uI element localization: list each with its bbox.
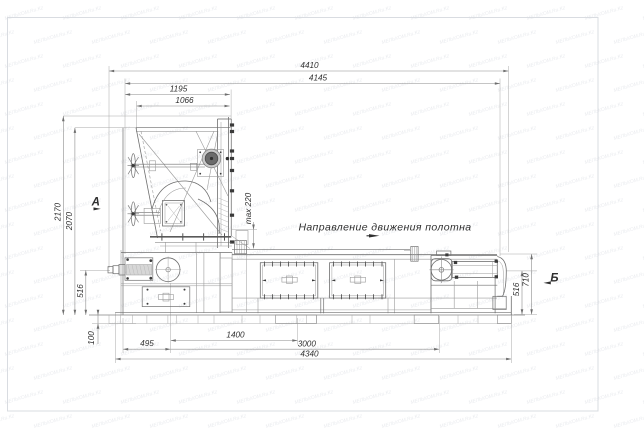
svg-text:МЕЛЬКОМ.Ru.Kz: МЕЛЬКОМ.Ru.Kz xyxy=(497,365,538,382)
svg-text:МЕЛЬКОМ.Ru.Kz: МЕЛЬКОМ.Ru.Kz xyxy=(178,389,219,406)
svg-text:МЕЛЬКОМ.Ru.Kz: МЕЛЬКОМ.Ru.Kz xyxy=(352,101,393,118)
svg-text:МЕЛЬКОМ.Ru.Kz: МЕЛЬКОМ.Ru.Kz xyxy=(526,341,567,358)
svg-text:МЕЛЬКОМ.Ru.Kz: МЕЛЬКОМ.Ru.Kz xyxy=(323,365,364,382)
svg-text:МЕЛЬКОМ.Ru.Kz: МЕЛЬКОМ.Ru.Kz xyxy=(497,77,538,94)
svg-text:МЕЛЬКОМ.Ru.Kz: МЕЛЬКОМ.Ru.Kz xyxy=(207,77,248,94)
svg-text:МЕЛЬКОМ.Ru.Kz: МЕЛЬКОМ.Ru.Kz xyxy=(120,197,161,214)
svg-text:МЕЛЬКОМ.Ru.Kz: МЕЛЬКОМ.Ru.Kz xyxy=(323,317,364,334)
svg-text:МЕЛЬКОМ.Ru.Kz: МЕЛЬКОМ.Ru.Kz xyxy=(149,365,190,382)
svg-text:МЕЛЬКОМ.Ru.Kz: МЕЛЬКОМ.Ru.Kz xyxy=(439,29,480,46)
svg-text:МЕЛЬКОМ.Ru.Kz: МЕЛЬКОМ.Ru.Kz xyxy=(33,413,74,430)
svg-text:МЕЛЬКОМ.Ru.Kz: МЕЛЬКОМ.Ru.Kz xyxy=(584,389,625,406)
svg-text:МЕЛЬКОМ.Ru.Kz: МЕЛЬКОМ.Ru.Kz xyxy=(526,245,567,262)
svg-text:МЕЛЬКОМ.Ru.Kz: МЕЛЬКОМ.Ru.Kz xyxy=(352,389,393,406)
svg-text:МЕЛЬКОМ.Ru.Kz: МЕЛЬКОМ.Ru.Kz xyxy=(352,197,393,214)
svg-text:МЕЛЬКОМ.Ru.Kz: МЕЛЬКОМ.Ru.Kz xyxy=(120,101,161,118)
svg-text:МЕЛЬКОМ.Ru.Kz: МЕЛЬКОМ.Ru.Kz xyxy=(613,317,644,334)
svg-text:710: 710 xyxy=(522,273,531,287)
svg-text:МЕЛЬКОМ.Ru.Kz: МЕЛЬКОМ.Ru.Kz xyxy=(352,53,393,70)
svg-text:1195: 1195 xyxy=(170,85,188,94)
svg-text:МЕЛЬКОМ.Ru.Kz: МЕЛЬКОМ.Ru.Kz xyxy=(91,221,132,238)
svg-text:2070: 2070 xyxy=(65,211,74,231)
svg-text:МЕЛЬКОМ.Ru.Kz: МЕЛЬКОМ.Ru.Kz xyxy=(497,317,538,334)
svg-text:МЕЛЬКОМ.Ru.Kz: МЕЛЬКОМ.Ru.Kz xyxy=(0,413,16,430)
svg-text:МЕЛЬКОМ.Ru.Kz: МЕЛЬКОМ.Ru.Kz xyxy=(33,173,74,190)
svg-text:МЕЛЬКОМ.Ru.Kz: МЕЛЬКОМ.Ru.Kz xyxy=(4,197,45,214)
svg-text:МЕЛЬКОМ.Ru.Kz: МЕЛЬКОМ.Ru.Kz xyxy=(120,5,161,22)
svg-text:МЕЛЬКОМ.Ru.Kz: МЕЛЬКОМ.Ru.Kz xyxy=(352,5,393,22)
svg-text:4340: 4340 xyxy=(300,350,319,359)
svg-text:МЕЛЬКОМ.Ru.Kz: МЕЛЬКОМ.Ru.Kz xyxy=(265,173,306,190)
svg-text:МЕЛЬКОМ.Ru.Kz: МЕЛЬКОМ.Ru.Kz xyxy=(149,173,190,190)
svg-text:МЕЛЬКОМ.Ru.Kz: МЕЛЬКОМ.Ru.Kz xyxy=(33,365,74,382)
svg-text:МЕЛЬКОМ.Ru.Kz: МЕЛЬКОМ.Ru.Kz xyxy=(468,389,509,406)
svg-text:МЕЛЬКОМ.Ru.Kz: МЕЛЬКОМ.Ru.Kz xyxy=(584,197,625,214)
svg-text:МЕЛЬКОМ.Ru.Kz: МЕЛЬКОМ.Ru.Kz xyxy=(555,317,596,334)
svg-text:МЕЛЬКОМ.Ru.Kz: МЕЛЬКОМ.Ru.Kz xyxy=(33,125,74,142)
svg-text:МЕЛЬКОМ.Ru.Kz: МЕЛЬКОМ.Ru.Kz xyxy=(62,341,103,358)
svg-text:МЕЛЬКОМ.Ru.Kz: МЕЛЬКОМ.Ru.Kz xyxy=(178,5,219,22)
svg-text:МЕЛЬКОМ.Ru.Kz: МЕЛЬКОМ.Ru.Kz xyxy=(410,293,451,310)
svg-text:МЕЛЬКОМ.Ru.Kz: МЕЛЬКОМ.Ru.Kz xyxy=(62,5,103,22)
svg-text:МЕЛЬКОМ.Ru.Kz: МЕЛЬКОМ.Ru.Kz xyxy=(120,389,161,406)
svg-text:МЕЛЬКОМ.Ru.Kz: МЕЛЬКОМ.Ru.Kz xyxy=(468,5,509,22)
svg-text:МЕЛЬКОМ.Ru.Kz: МЕЛЬКОМ.Ru.Kz xyxy=(352,149,393,166)
svg-text:МЕЛЬКОМ.Ru.Kz: МЕЛЬКОМ.Ru.Kz xyxy=(323,413,364,430)
svg-text:МЕЛЬКОМ.Ru.Kz: МЕЛЬКОМ.Ru.Kz xyxy=(497,173,538,190)
svg-text:МЕЛЬКОМ.Ru.Kz: МЕЛЬКОМ.Ru.Kz xyxy=(555,269,596,286)
svg-text:МЕЛЬКОМ.Ru.Kz: МЕЛЬКОМ.Ru.Kz xyxy=(265,77,306,94)
svg-text:МЕЛЬКОМ.Ru.Kz: МЕЛЬКОМ.Ru.Kz xyxy=(236,197,277,214)
svg-text:МЕЛЬКОМ.Ru.Kz: МЕЛЬКОМ.Ru.Kz xyxy=(120,245,161,262)
svg-text:МЕЛЬКОМ.Ru.Kz: МЕЛЬКОМ.Ru.Kz xyxy=(91,413,132,430)
svg-text:МЕЛЬКОМ.Ru.Kz: МЕЛЬКОМ.Ru.Kz xyxy=(555,173,596,190)
svg-text:МЕЛЬКОМ.Ru.Kz: МЕЛЬКОМ.Ru.Kz xyxy=(4,389,45,406)
svg-text:МЕЛЬКОМ.Ru.Kz: МЕЛЬКОМ.Ru.Kz xyxy=(4,53,45,70)
svg-text:МЕЛЬКОМ.Ru.Kz: МЕЛЬКОМ.Ru.Kz xyxy=(381,269,422,286)
svg-text:МЕЛЬКОМ.Ru.Kz: МЕЛЬКОМ.Ru.Kz xyxy=(207,365,248,382)
svg-text:МЕЛЬКОМ.Ru.Kz: МЕЛЬКОМ.Ru.Kz xyxy=(62,389,103,406)
svg-text:МЕЛЬКОМ.Ru.Kz: МЕЛЬКОМ.Ru.Kz xyxy=(381,29,422,46)
svg-text:МЕЛЬКОМ.Ru.Kz: МЕЛЬКОМ.Ru.Kz xyxy=(526,389,567,406)
svg-text:МЕЛЬКОМ.Ru.Kz: МЕЛЬКОМ.Ru.Kz xyxy=(62,101,103,118)
svg-text:МЕЛЬКОМ.Ru.Kz: МЕЛЬКОМ.Ru.Kz xyxy=(381,317,422,334)
svg-text:МЕЛЬКОМ.Ru.Kz: МЕЛЬКОМ.Ru.Kz xyxy=(613,173,644,190)
svg-text:МЕЛЬКОМ.Ru.Kz: МЕЛЬКОМ.Ru.Kz xyxy=(468,53,509,70)
svg-text:МЕЛЬКОМ.Ru.Kz: МЕЛЬКОМ.Ru.Kz xyxy=(294,5,335,22)
svg-text:МЕЛЬКОМ.Ru.Kz: МЕЛЬКОМ.Ru.Kz xyxy=(236,293,277,310)
svg-text:МЕЛЬКОМ.Ru.Kz: МЕЛЬКОМ.Ru.Kz xyxy=(91,173,132,190)
svg-text:МЕЛЬКОМ.Ru.Kz: МЕЛЬКОМ.Ru.Kz xyxy=(526,101,567,118)
svg-text:МЕЛЬКОМ.Ru.Kz: МЕЛЬКОМ.Ru.Kz xyxy=(294,101,335,118)
svg-text:МЕЛЬКОМ.Ru.Kz: МЕЛЬКОМ.Ru.Kz xyxy=(526,5,567,22)
svg-text:МЕЛЬКОМ.Ru.Kz: МЕЛЬКОМ.Ru.Kz xyxy=(613,77,644,94)
svg-text:МЕЛЬКОМ.Ru.Kz: МЕЛЬКОМ.Ru.Kz xyxy=(584,101,625,118)
svg-text:МЕЛЬКОМ.Ru.Kz: МЕЛЬКОМ.Ru.Kz xyxy=(265,413,306,430)
svg-text:МЕЛЬКОМ.Ru.Kz: МЕЛЬКОМ.Ru.Kz xyxy=(265,317,306,334)
svg-text:МЕЛЬКОМ.Ru.Kz: МЕЛЬКОМ.Ru.Kz xyxy=(33,29,74,46)
svg-text:МЕЛЬКОМ.Ru.Kz: МЕЛЬКОМ.Ru.Kz xyxy=(613,413,644,430)
svg-text:МЕЛЬКОМ.Ru.Kz: МЕЛЬКОМ.Ru.Kz xyxy=(381,365,422,382)
svg-text:МЕЛЬКОМ.Ru.Kz: МЕЛЬКОМ.Ru.Kz xyxy=(33,317,74,334)
svg-text:МЕЛЬКОМ.Ru.Kz: МЕЛЬКОМ.Ru.Kz xyxy=(439,173,480,190)
svg-text:МЕЛЬКОМ.Ru.Kz: МЕЛЬКОМ.Ru.Kz xyxy=(526,197,567,214)
svg-text:МЕЛЬКОМ.Ru.Kz: МЕЛЬКОМ.Ru.Kz xyxy=(555,77,596,94)
svg-text:Б: Б xyxy=(550,272,558,284)
svg-text:МЕЛЬКОМ.Ru.Kz: МЕЛЬКОМ.Ru.Kz xyxy=(613,365,644,382)
svg-text:МЕЛЬКОМ.Ru.Kz: МЕЛЬКОМ.Ru.Kz xyxy=(323,125,364,142)
svg-text:МЕЛЬКОМ.Ru.Kz: МЕЛЬКОМ.Ru.Kz xyxy=(265,125,306,142)
svg-text:МЕЛЬКОМ.Ru.Kz: МЕЛЬКОМ.Ru.Kz xyxy=(236,101,277,118)
svg-text:МЕЛЬКОМ.Ru.Kz: МЕЛЬКОМ.Ru.Kz xyxy=(62,149,103,166)
svg-text:МЕЛЬКОМ.Ru.Kz: МЕЛЬКОМ.Ru.Kz xyxy=(236,53,277,70)
svg-text:МЕЛЬКОМ.Ru.Kz: МЕЛЬКОМ.Ru.Kz xyxy=(584,341,625,358)
svg-text:МЕЛЬКОМ.Ru.Kz: МЕЛЬКОМ.Ru.Kz xyxy=(207,221,248,238)
svg-text:МЕЛЬКОМ.Ru.Kz: МЕЛЬКОМ.Ru.Kz xyxy=(4,245,45,262)
svg-text:МЕЛЬКОМ.Ru.Kz: МЕЛЬКОМ.Ru.Kz xyxy=(236,5,277,22)
svg-text:МЕЛЬКОМ.Ru.Kz: МЕЛЬКОМ.Ru.Kz xyxy=(207,29,248,46)
svg-text:МЕЛЬКОМ.Ru.Kz: МЕЛЬКОМ.Ru.Kz xyxy=(207,413,248,430)
svg-text:МЕЛЬКОМ.Ru.Kz: МЕЛЬКОМ.Ru.Kz xyxy=(236,149,277,166)
svg-text:516: 516 xyxy=(76,284,85,298)
svg-text:МЕЛЬКОМ.Ru.Kz: МЕЛЬКОМ.Ru.Kz xyxy=(613,125,644,142)
svg-text:МЕЛЬКОМ.Ru.Kz: МЕЛЬКОМ.Ru.Kz xyxy=(555,221,596,238)
svg-text:МЕЛЬКОМ.Ru.Kz: МЕЛЬКОМ.Ru.Kz xyxy=(613,29,644,46)
svg-text:МЕЛЬКОМ.Ru.Kz: МЕЛЬКОМ.Ru.Kz xyxy=(381,173,422,190)
svg-text:МЕЛЬКОМ.Ru.Kz: МЕЛЬКОМ.Ru.Kz xyxy=(555,29,596,46)
svg-text:МЕЛЬКОМ.Ru.Kz: МЕЛЬКОМ.Ru.Kz xyxy=(4,341,45,358)
svg-text:МЕЛЬКОМ.Ru.Kz: МЕЛЬКОМ.Ru.Kz xyxy=(439,413,480,430)
svg-text:МЕЛЬКОМ.Ru.Kz: МЕЛЬКОМ.Ru.Kz xyxy=(468,101,509,118)
svg-text:МЕЛЬКОМ.Ru.Kz: МЕЛЬКОМ.Ru.Kz xyxy=(410,197,451,214)
svg-text:МЕЛЬКОМ.Ru.Kz: МЕЛЬКОМ.Ru.Kz xyxy=(526,293,567,310)
svg-text:МЕЛЬКОМ.Ru.Kz: МЕЛЬКОМ.Ru.Kz xyxy=(410,5,451,22)
svg-text:МЕЛЬКОМ.Ru.Kz: МЕЛЬКОМ.Ru.Kz xyxy=(4,149,45,166)
svg-text:МЕЛЬКОМ.Ru.Kz: МЕЛЬКОМ.Ru.Kz xyxy=(439,125,480,142)
svg-text:МЕЛЬКОМ.Ru.Kz: МЕЛЬКОМ.Ru.Kz xyxy=(468,197,509,214)
svg-text:МЕЛЬКОМ.Ru.Kz: МЕЛЬКОМ.Ru.Kz xyxy=(120,293,161,310)
svg-text:МЕЛЬКОМ.Ru.Kz: МЕЛЬКОМ.Ru.Kz xyxy=(91,29,132,46)
svg-text:МЕЛЬКОМ.Ru.Kz: МЕЛЬКОМ.Ru.Kz xyxy=(555,125,596,142)
svg-text:1400: 1400 xyxy=(226,331,245,340)
svg-text:А: А xyxy=(91,196,100,208)
svg-text:МЕЛЬКОМ.Ru.Kz: МЕЛЬКОМ.Ru.Kz xyxy=(178,293,219,310)
svg-text:2170: 2170 xyxy=(53,202,62,222)
svg-text:МЕЛЬКОМ.Ru.Kz: МЕЛЬКОМ.Ru.Kz xyxy=(497,125,538,142)
svg-text:516: 516 xyxy=(512,282,521,296)
svg-text:МЕЛЬКОМ.Ru.Kz: МЕЛЬКОМ.Ru.Kz xyxy=(178,245,219,262)
svg-text:МЕЛЬКОМ.Ru.Kz: МЕЛЬКОМ.Ru.Kz xyxy=(265,365,306,382)
svg-text:МЕЛЬКОМ.Ru.Kz: МЕЛЬКОМ.Ru.Kz xyxy=(4,5,45,22)
svg-text:МЕЛЬКОМ.Ru.Kz: МЕЛЬКОМ.Ru.Kz xyxy=(323,77,364,94)
svg-text:МЕЛЬКОМ.Ru.Kz: МЕЛЬКОМ.Ru.Kz xyxy=(497,29,538,46)
svg-text:3000: 3000 xyxy=(298,340,317,349)
svg-text:МЕЛЬКОМ.Ru.Kz: МЕЛЬКОМ.Ru.Kz xyxy=(497,413,538,430)
svg-text:МЕЛЬКОМ.Ru.Kz: МЕЛЬКОМ.Ru.Kz xyxy=(497,221,538,238)
svg-text:МЕЛЬКОМ.Ru.Kz: МЕЛЬКОМ.Ru.Kz xyxy=(4,101,45,118)
svg-text:МЕЛЬКОМ.Ru.Kz: МЕЛЬКОМ.Ru.Kz xyxy=(584,5,625,22)
svg-text:max 220: max 220 xyxy=(244,192,253,224)
svg-text:МЕЛЬКОМ.Ru.Kz: МЕЛЬКОМ.Ru.Kz xyxy=(439,365,480,382)
svg-text:МЕЛЬКОМ.Ru.Kz: МЕЛЬКОМ.Ru.Kz xyxy=(294,293,335,310)
svg-text:МЕЛЬКОМ.Ru.Kz: МЕЛЬКОМ.Ru.Kz xyxy=(294,149,335,166)
svg-text:МЕЛЬКОМ.Ru.Kz: МЕЛЬКОМ.Ru.Kz xyxy=(410,101,451,118)
svg-text:МЕЛЬКОМ.Ru.Kz: МЕЛЬКОМ.Ru.Kz xyxy=(91,317,132,334)
svg-text:МЕЛЬКОМ.Ru.Kz: МЕЛЬКОМ.Ru.Kz xyxy=(381,413,422,430)
svg-text:МЕЛЬКОМ.Ru.Kz: МЕЛЬКОМ.Ru.Kz xyxy=(33,269,74,286)
svg-text:МЕЛЬКОМ.Ru.Kz: МЕЛЬКОМ.Ru.Kz xyxy=(62,53,103,70)
svg-text:МЕЛЬКОМ.Ru.Kz: МЕЛЬКОМ.Ru.Kz xyxy=(236,389,277,406)
svg-text:4410: 4410 xyxy=(300,61,319,70)
svg-text:МЕЛЬКОМ.Ru.Kz: МЕЛЬКОМ.Ru.Kz xyxy=(207,269,248,286)
svg-text:МЕЛЬКОМ.Ru.Kz: МЕЛЬКОМ.Ru.Kz xyxy=(410,149,451,166)
svg-text:МЕЛЬКОМ.Ru.Kz: МЕЛЬКОМ.Ru.Kz xyxy=(91,269,132,286)
svg-text:МЕЛЬКОМ.Ru.Kz: МЕЛЬКОМ.Ru.Kz xyxy=(555,365,596,382)
svg-text:МЕЛЬКОМ.Ru.Kz: МЕЛЬКОМ.Ru.Kz xyxy=(294,197,335,214)
svg-text:МЕЛЬКОМ.Ru.Kz: МЕЛЬКОМ.Ru.Kz xyxy=(207,173,248,190)
svg-text:МЕЛЬКОМ.Ru.Kz: МЕЛЬКОМ.Ru.Kz xyxy=(120,53,161,70)
svg-text:МЕЛЬКОМ.Ru.Kz: МЕЛЬКОМ.Ru.Kz xyxy=(62,245,103,262)
svg-text:1066: 1066 xyxy=(175,96,194,105)
svg-text:100: 100 xyxy=(87,331,96,345)
svg-text:МЕЛЬКОМ.Ru.Kz: МЕЛЬКОМ.Ru.Kz xyxy=(468,149,509,166)
svg-text:МЕЛЬКОМ.Ru.Kz: МЕЛЬКОМ.Ru.Kz xyxy=(149,29,190,46)
svg-text:МЕЛЬКОМ.Ru.Kz: МЕЛЬКОМ.Ru.Kz xyxy=(468,341,509,358)
svg-text:МЕЛЬКОМ.Ru.Kz: МЕЛЬКОМ.Ru.Kz xyxy=(410,53,451,70)
svg-text:МЕЛЬКОМ.Ru.Kz: МЕЛЬКОМ.Ru.Kz xyxy=(33,77,74,94)
svg-text:МЕЛЬКОМ.Ru.Kz: МЕЛЬКОМ.Ru.Kz xyxy=(149,413,190,430)
svg-text:МЕЛЬКОМ.Ru.Kz: МЕЛЬКОМ.Ru.Kz xyxy=(613,221,644,238)
svg-text:МЕЛЬКОМ.Ru.Kz: МЕЛЬКОМ.Ru.Kz xyxy=(584,293,625,310)
svg-text:МЕЛЬКОМ.Ru.Kz: МЕЛЬКОМ.Ru.Kz xyxy=(4,293,45,310)
svg-text:МЕЛЬКОМ.Ru.Kz: МЕЛЬКОМ.Ru.Kz xyxy=(410,389,451,406)
svg-text:МЕЛЬКОМ.Ru.Kz: МЕЛЬКОМ.Ru.Kz xyxy=(323,29,364,46)
svg-text:МЕЛЬКОМ.Ru.Kz: МЕЛЬКОМ.Ru.Kz xyxy=(294,389,335,406)
svg-text:МЕЛЬКОМ.Ru.Kz: МЕЛЬКОМ.Ru.Kz xyxy=(323,173,364,190)
svg-text:МЕЛЬКОМ.Ru.Kz: МЕЛЬКОМ.Ru.Kz xyxy=(439,317,480,334)
svg-text:МЕЛЬКОМ.Ru.Kz: МЕЛЬКОМ.Ru.Kz xyxy=(91,365,132,382)
svg-text:МЕЛЬКОМ.Ru.Kz: МЕЛЬКОМ.Ru.Kz xyxy=(149,317,190,334)
svg-text:МЕЛЬКОМ.Ru.Kz: МЕЛЬКОМ.Ru.Kz xyxy=(584,53,625,70)
svg-text:МЕЛЬКОМ.Ru.Kz: МЕЛЬКОМ.Ru.Kz xyxy=(381,77,422,94)
svg-text:МЕЛЬКОМ.Ru.Kz: МЕЛЬКОМ.Ru.Kz xyxy=(381,125,422,142)
svg-text:МЕЛЬКОМ.Ru.Kz: МЕЛЬКОМ.Ru.Kz xyxy=(91,77,132,94)
svg-text:МЕЛЬКОМ.Ru.Kz: МЕЛЬКОМ.Ru.Kz xyxy=(265,29,306,46)
svg-text:МЕЛЬКОМ.Ru.Kz: МЕЛЬКОМ.Ru.Kz xyxy=(555,413,596,430)
svg-text:МЕЛЬКОМ.Ru.Kz: МЕЛЬКОМ.Ru.Kz xyxy=(526,149,567,166)
svg-text:МЕЛЬКОМ.Ru.Kz: МЕЛЬКОМ.Ru.Kz xyxy=(584,149,625,166)
svg-text:МЕЛЬКОМ.Ru.Kz: МЕЛЬКОМ.Ru.Kz xyxy=(439,77,480,94)
svg-text:МЕЛЬКОМ.Ru.Kz: МЕЛЬКОМ.Ru.Kz xyxy=(613,269,644,286)
svg-text:МЕЛЬКОМ.Ru.Kz: МЕЛЬКОМ.Ru.Kz xyxy=(526,53,567,70)
svg-text:МЕЛЬКОМ.Ru.Kz: МЕЛЬКОМ.Ru.Kz xyxy=(178,53,219,70)
svg-text:МЕЛЬКОМ.Ru.Kz: МЕЛЬКОМ.Ru.Kz xyxy=(352,293,393,310)
svg-text:495: 495 xyxy=(140,339,154,348)
svg-text:Направление движения полотна: Направление движения полотна xyxy=(298,222,471,234)
svg-text:4145: 4145 xyxy=(309,74,328,83)
svg-text:МЕЛЬКОМ.Ru.Kz: МЕЛЬКОМ.Ru.Kz xyxy=(584,245,625,262)
